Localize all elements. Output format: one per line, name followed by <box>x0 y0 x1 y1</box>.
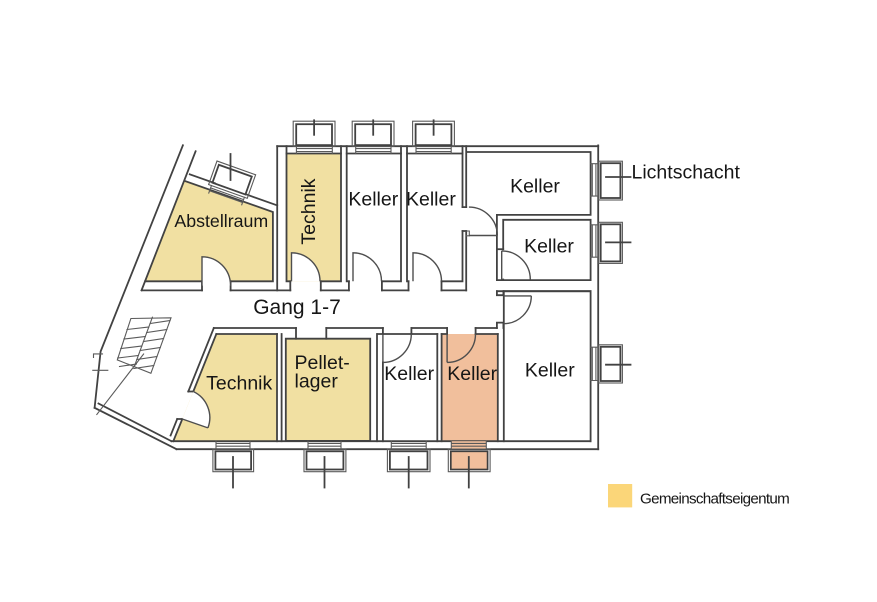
svg-text:Technik: Technik <box>206 373 272 395</box>
svg-text:Keller: Keller <box>525 359 575 381</box>
svg-text:Keller: Keller <box>524 235 574 257</box>
svg-text:Keller: Keller <box>406 188 456 210</box>
svg-text:Gemeinschaftseigentum: Gemeinschaftseigentum <box>640 491 789 508</box>
svg-text:Technik: Technik <box>298 178 320 244</box>
svg-text:Keller: Keller <box>348 188 398 210</box>
svg-text:Keller: Keller <box>510 176 560 198</box>
svg-text:Keller: Keller <box>447 363 497 385</box>
svg-text:lager: lager <box>295 371 339 393</box>
svg-text:Lichtschacht: Lichtschacht <box>632 162 741 184</box>
svg-text:Abstellraum: Abstellraum <box>174 211 268 231</box>
svg-text:Gang 1-7: Gang 1-7 <box>253 296 341 319</box>
svg-text:Keller: Keller <box>384 363 434 385</box>
